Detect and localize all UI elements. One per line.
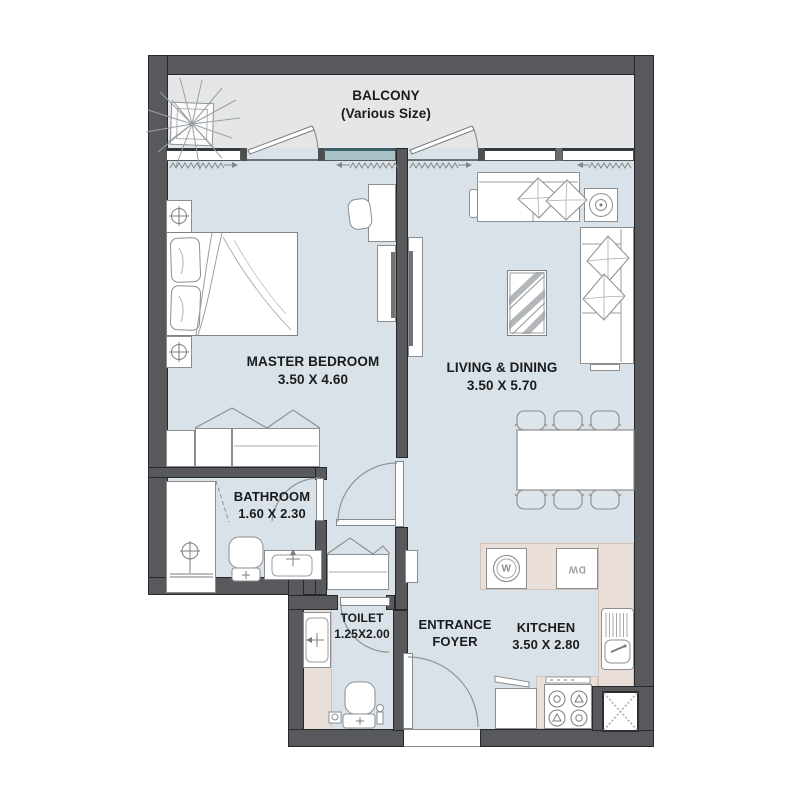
toilet-dimensions: 1.25X2.00 [334,627,390,643]
entrance-foyer-line1: ENTRANCE [418,616,491,633]
dishwasher-label: DW [568,563,586,574]
washing-machine-label: W [502,563,512,574]
shaft-x-icon [604,693,637,730]
curtain-symbols [170,162,631,168]
bed-details [170,233,291,335]
balcony-name: BALCONY [341,87,431,105]
balcony-label: BALCONY (Various Size) [341,87,431,123]
tv-screen-bedroom [391,252,395,318]
bathroom-name: BATHROOM [234,488,310,505]
balcony-door-living [410,126,478,154]
wardrobe-fold-doors [195,408,320,446]
entrance-foyer-label: ENTRANCE FOYER [418,616,491,650]
kitchen-name: KITCHEN [512,619,580,636]
tv-screen-living [409,251,413,346]
master-bedroom-name: MASTER BEDROOM [247,353,380,371]
balcony-door-bedroom [248,126,318,154]
bathroom-wc [229,537,263,581]
bedroom-door-arc [338,463,397,522]
plant-icon [146,78,240,170]
balcony-size-note: (Various Size) [341,105,431,123]
corner-lamp-icon [590,194,613,217]
floor-plan: BALCONY (Various Size) MASTER BEDROOM 3.… [0,0,800,800]
kitchen-label: KITCHEN 3.50 X 2.80 [512,619,580,653]
master-bedroom-dimensions: 3.50 X 4.60 [247,371,380,389]
stove-burners [546,677,590,726]
lamp-icons [169,206,189,362]
living-dining-dimensions: 3.50 X 5.70 [446,377,557,395]
dining-table [517,430,634,490]
rug-stripes [498,260,559,358]
bathroom-label: BATHROOM 1.60 X 2.30 [234,488,310,522]
master-bedroom-label: MASTER BEDROOM 3.50 X 4.60 [247,353,380,389]
living-dining-name: LIVING & DINING [446,359,557,377]
kitchen-dimensions: 3.50 X 2.80 [512,636,580,653]
bathroom-dimensions: 1.60 X 2.30 [234,505,310,522]
desk-chair [347,198,372,230]
living-dining-label: LIVING & DINING 3.50 X 5.70 [446,359,557,395]
toilet-label: TOILET 1.25X2.00 [334,611,390,643]
kitchen-sink-details [605,613,630,663]
entrance-foyer-line2: FOYER [418,633,491,650]
bathroom-vanity-sink [272,549,312,576]
fridge-flap [495,676,529,687]
shower-details [170,481,229,577]
entrance-door-arc [408,657,478,727]
toilet-name: TOILET [334,611,390,627]
toilet-wc [329,682,384,728]
shoe-cabinet-fold-doors [327,538,390,572]
toilet-sink-details [306,618,328,662]
